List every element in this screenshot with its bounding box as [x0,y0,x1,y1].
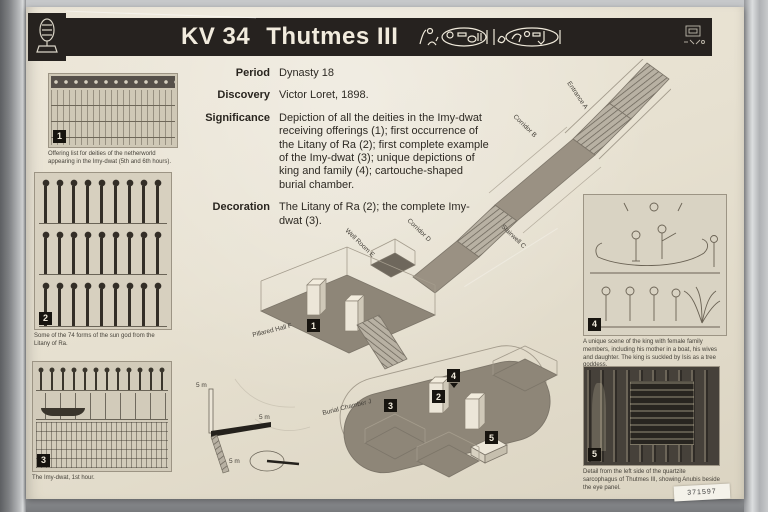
litany-figures-row [39,230,167,276]
hall-pillar [307,279,326,315]
figure-2: 2 Some of the 74 forms of the sun god fr… [34,172,172,349]
offering-list-rows [51,90,175,145]
cartouche-stand-icon [29,15,65,59]
discovery-value: Victor Loret, 1898. [279,89,489,102]
anubis-figure [592,383,606,452]
decoration-value: The Litany of Ra (2); the complete Imy-d… [279,201,489,228]
figure-3-badge: 3 [37,454,50,467]
panel-logo [28,13,66,61]
discovery-label: Discovery [196,89,270,102]
tomb-facts: Period Dynasty 18 Discovery Victor Loret… [196,67,490,228]
label-well-room-e: Well Room E [344,227,377,259]
figure-3-caption: The Imy-dwat, 1st hour. [32,475,172,483]
scale-label-vertical: 5 m [196,382,207,389]
litany-figures-row [39,178,167,224]
label-corridor-b: Corridor B [512,113,538,139]
figure-1-image: 1 [48,73,178,148]
figure-4-image: 4 [583,194,727,336]
small-hieroglyphs-icon [680,24,706,50]
label-entrance-a: Entrance A [565,80,589,111]
scale-indicator: 5 m 5 m 5 m [196,382,299,473]
figure-4: 4 A unique scene of the king with female… [583,194,727,370]
figure-1-caption: Offering list for deities of the netherw… [48,151,178,167]
scale-label-horizontal: 5 m [259,414,270,421]
diagram-marker-3-number: 3 [388,401,393,411]
photo-frame-bottom [0,499,768,512]
significance-label: Significance [196,112,270,192]
royal-titulary-hieroglyphs-icon [416,25,566,49]
period-label: Period [196,67,270,80]
label-pillared-hall-f: Pillared Hall F [252,322,293,339]
chamber-pillar [465,393,485,429]
diagram-marker-2-number: 2 [436,392,441,402]
litany-figures-row [39,281,167,327]
figure-5-image: 5 [583,366,720,466]
tomb-number: KV 34 [181,23,250,51]
figure-5: 5 Detail from the left side of the quart… [583,366,720,492]
figure-3: 3 The Imy-dwat, 1st hour. [32,361,172,483]
title-bar: KV 34 Thutmes III [28,18,712,56]
page-title: KV 34 Thutmes III [181,23,398,51]
figure-1: 1 Offering list for deities of the nethe… [48,73,178,167]
deities-register [36,366,168,391]
diagram-marker-4-number: 4 [451,371,456,381]
inventory-sticker: 371597 [674,484,731,502]
eye-panel [630,381,694,446]
decoration-label: Decoration [196,201,270,228]
figure-2-caption: Some of the 74 forms of the sun god from… [34,333,172,349]
solar-boat [41,408,85,416]
figure-3-image: 3 [32,361,172,472]
tomb-info-panel: Entrance A Corridor B Stairwell C Corrid… [26,7,744,499]
diagram-marker-1-number: 1 [311,321,316,331]
metal-frame-right [744,0,768,512]
metal-frame-left [0,0,26,512]
scale-label-diagonal: 5 m [229,458,240,465]
tomb-name: Thutmes III [266,23,398,51]
label-stairwell-c: Stairwell C [500,223,527,250]
figure-5-badge: 5 [588,448,601,461]
period-value: Dynasty 18 [279,67,489,80]
figure-2-image: 2 [34,172,172,330]
figure-4-badge: 4 [588,318,601,331]
sketch-line [235,379,295,407]
orientation-line [267,461,299,464]
diagram-marker-5-number: 5 [489,433,494,443]
text-grid-register [36,422,168,468]
significance-value: Depiction of all the deities in the Imy-… [279,112,489,192]
well-room-e [371,239,415,277]
family-boat-scene-drawing [584,195,726,333]
figure-1-badge: 1 [53,130,66,143]
star-band [51,76,175,88]
entrance-a-stairs [565,59,671,159]
figure-2-badge: 2 [39,312,52,325]
